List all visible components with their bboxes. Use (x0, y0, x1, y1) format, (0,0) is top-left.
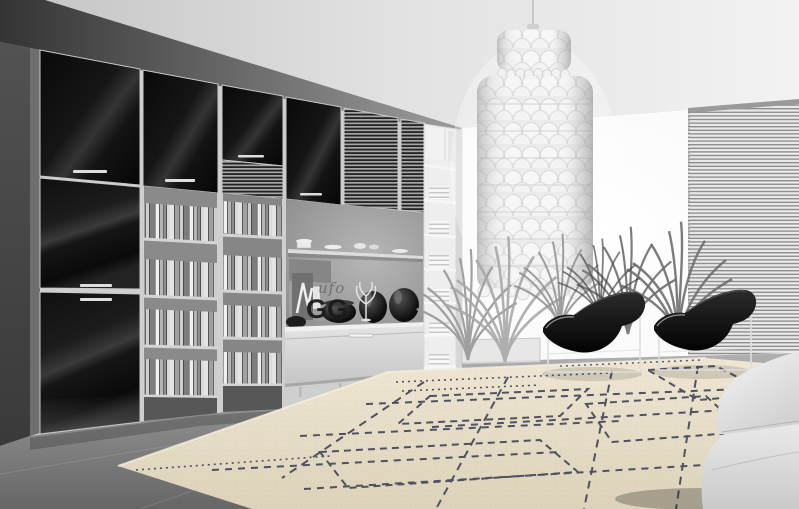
chandelier-body (477, 76, 594, 300)
book-row (144, 259, 217, 299)
book-row (144, 309, 217, 348)
chandelier-top-tier (497, 30, 571, 79)
art-print-small (292, 273, 313, 320)
display-niche (286, 199, 425, 330)
chair-sh (652, 365, 752, 379)
room-scene (0, 0, 799, 509)
louver-door-1 (222, 160, 283, 199)
chair-sh (542, 367, 642, 381)
louver-door-2 (344, 108, 398, 210)
book-row (223, 352, 282, 386)
bookshelf-right (222, 193, 283, 412)
unit-side-panel (30, 48, 40, 436)
plinth (222, 386, 283, 412)
left-wall (0, 42, 30, 446)
book-row (223, 201, 282, 237)
living-room-photo: ufo GG (0, 0, 799, 509)
glass-door-top-1 (40, 50, 140, 185)
book-row (223, 305, 282, 340)
vase (389, 288, 419, 322)
sideboard-handle (349, 334, 373, 337)
book-row (144, 203, 217, 242)
bookshelf-left (143, 186, 218, 421)
glass-door-top-4 (286, 97, 341, 205)
glass-door-top-2 (143, 70, 218, 193)
vase (359, 291, 387, 323)
book-row (223, 255, 282, 294)
book-row (144, 359, 217, 398)
vase (286, 316, 306, 328)
glass-door-top-3 (222, 85, 283, 166)
tall-door-upper (40, 178, 140, 289)
louver-door-3 (401, 119, 425, 213)
